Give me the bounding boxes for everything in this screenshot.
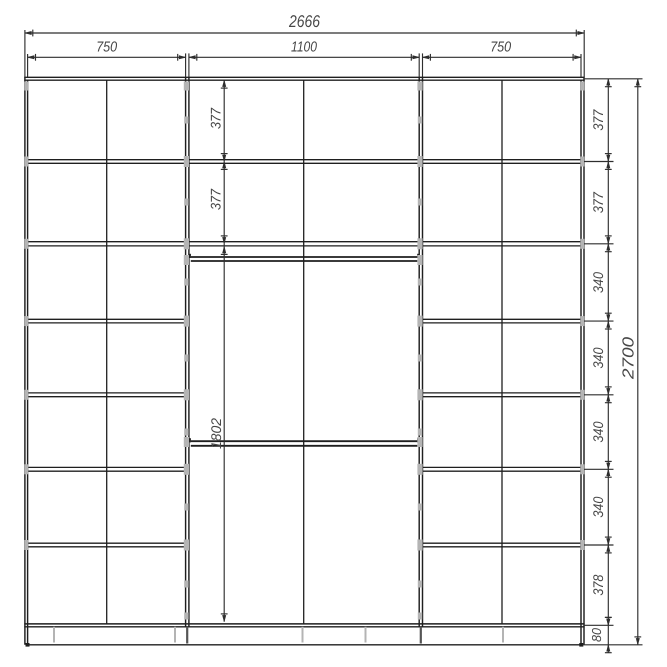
svg-text:377: 377: [208, 107, 224, 129]
svg-text:340: 340: [590, 496, 606, 517]
svg-text:80: 80: [589, 627, 604, 642]
svg-text:377: 377: [590, 191, 606, 213]
svg-text:2666: 2666: [288, 12, 320, 31]
svg-text:1100: 1100: [291, 39, 317, 55]
svg-text:340: 340: [590, 272, 606, 293]
svg-text:340: 340: [590, 347, 606, 368]
svg-text:2700: 2700: [621, 337, 638, 380]
svg-text:750: 750: [96, 39, 117, 55]
svg-text:378: 378: [590, 574, 606, 595]
svg-text:377: 377: [208, 188, 224, 210]
svg-text:340: 340: [590, 421, 606, 442]
svg-text:377: 377: [590, 109, 606, 131]
svg-text:1802: 1802: [208, 418, 224, 449]
svg-text:750: 750: [490, 39, 511, 55]
